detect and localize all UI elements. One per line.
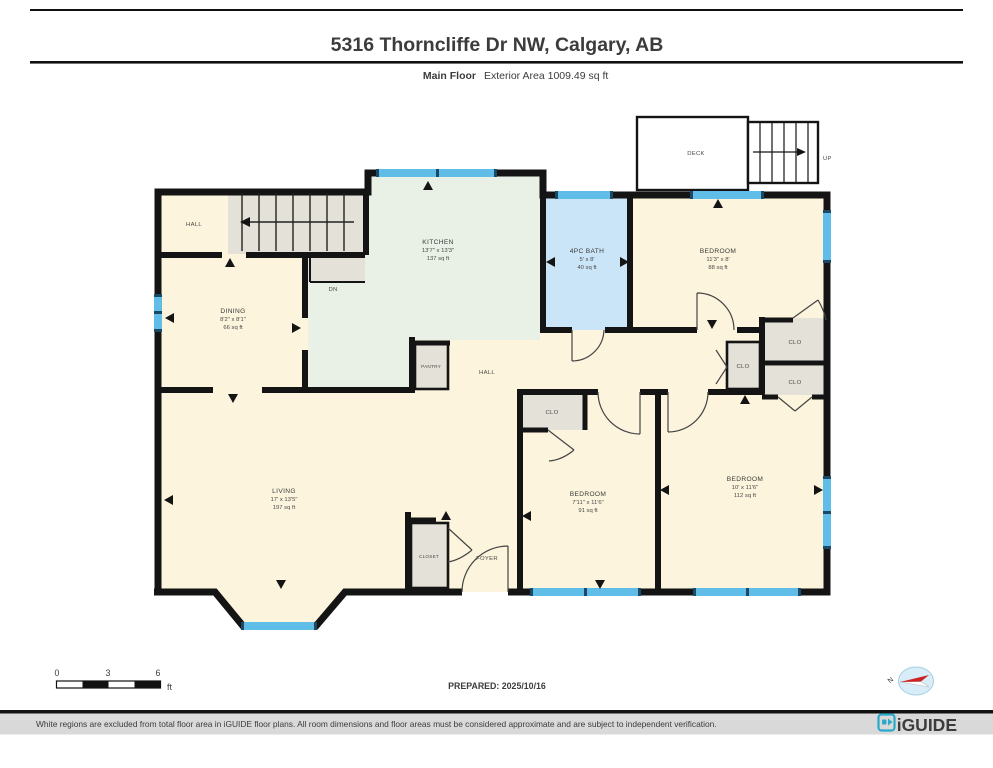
foyer-closet-label: CLOSET (419, 554, 439, 559)
floor-label: Main Floor (423, 70, 476, 82)
bedroom-ne-window (823, 212, 831, 262)
scale-bar: 0 3 6 ft (55, 668, 173, 692)
dining-window-lower (154, 314, 162, 331)
top-border-line (30, 9, 963, 11)
dining-name: DINING (220, 308, 245, 315)
floor-plan: KITCHEN 13'7" x 13'3" 137 sq ft DINING 8… (154, 117, 832, 630)
bedroom-ne-area: 88 sq ft (708, 265, 728, 271)
pantry-label: PANTRY (421, 364, 441, 369)
bedroom-se-area: 112 sq ft (734, 493, 757, 499)
scale-unit-label: ft (167, 682, 172, 692)
page-footer: White regions are excluded from total fl… (0, 710, 993, 735)
living-label: LIVING 17' x 13'5" 197 sq ft (271, 488, 298, 511)
bedroom-mid-dims: 7'11" x 11'6" (572, 500, 603, 506)
scale-tick-3: 3 (106, 668, 111, 678)
floor-plan-page: 5316 Thorncliffe Dr NW, Calgary, AB Main… (0, 0, 993, 768)
deck-door-window (692, 191, 763, 199)
clo-ne-upper-label: CLO (788, 340, 801, 346)
page-title: 5316 Thorncliffe Dr NW, Calgary, AB (331, 34, 664, 56)
footer-border-line (0, 710, 993, 714)
hall-center-label: HALL (479, 370, 495, 376)
prepared-date: PREPARED: 2025/10/16 (448, 681, 546, 691)
foyer-label: FOYER (476, 556, 498, 562)
bedroom-se-dims: 10' x 11'6" (732, 485, 759, 491)
dining-label: DINING 8'2" x 8'1" 66 sq ft (220, 308, 246, 331)
living-name: LIVING (272, 488, 296, 495)
page-header: 5316 Thorncliffe Dr NW, Calgary, AB Main… (30, 9, 963, 82)
dining-area: 66 sq ft (223, 325, 243, 331)
bedroom-mid-name: BEDROOM (570, 491, 607, 498)
scale-tick-0: 0 (55, 668, 60, 678)
scale-bar-segment (83, 681, 109, 688)
bedroom-ne-dims: 11'3" x 8' (706, 257, 729, 263)
bath-area: 40 sq ft (577, 265, 597, 271)
up-label: UP (823, 156, 832, 162)
bedroom-ne-name: BEDROOM (700, 248, 737, 255)
bath-name: 4PC BATH (570, 248, 605, 255)
compass: N (887, 667, 934, 695)
scale-bar-segment (135, 681, 161, 688)
clo-hall-label: CLO (736, 364, 749, 370)
living-dims: 17' x 13'5" (271, 497, 298, 503)
scale-tick-6: 6 (156, 668, 161, 678)
living-area: 197 sq ft (273, 505, 296, 511)
bedroom-mid-area: 91 sq ft (578, 508, 598, 514)
clo-mid-label: CLO (545, 410, 558, 416)
footer-disclaimer: White regions are excluded from total fl… (36, 719, 717, 729)
kitchen-label: KITCHEN 13'7" x 13'3" 137 sq ft (422, 239, 454, 262)
hall-upper-label: HALL (186, 222, 202, 228)
kitchen-name: KITCHEN (422, 239, 453, 246)
dining-dims: 8'2" x 8'1" (220, 317, 246, 323)
title-rule (30, 61, 963, 64)
bedroom-se-name: BEDROOM (727, 476, 764, 483)
exterior-area-label: Exterior Area 1009.49 sq ft (484, 70, 608, 82)
dn-label: DN (328, 287, 337, 293)
bath-window (557, 191, 612, 199)
compass-north-label: N (887, 676, 895, 685)
iguide-logo-text: iGUIDE (897, 715, 957, 735)
iguide-logo-icon-dot (882, 720, 887, 725)
deck-label: DECK (687, 151, 705, 157)
bath-dims: 5' x 8' (579, 257, 594, 263)
kitchen-area: 137 sq ft (427, 256, 450, 262)
bay-window (243, 622, 316, 630)
clo-ne-lower-label: CLO (788, 380, 801, 386)
dining-window-upper (154, 296, 162, 312)
kitchen-dims: 13'7" x 13'3" (422, 248, 454, 254)
deck (637, 117, 818, 190)
